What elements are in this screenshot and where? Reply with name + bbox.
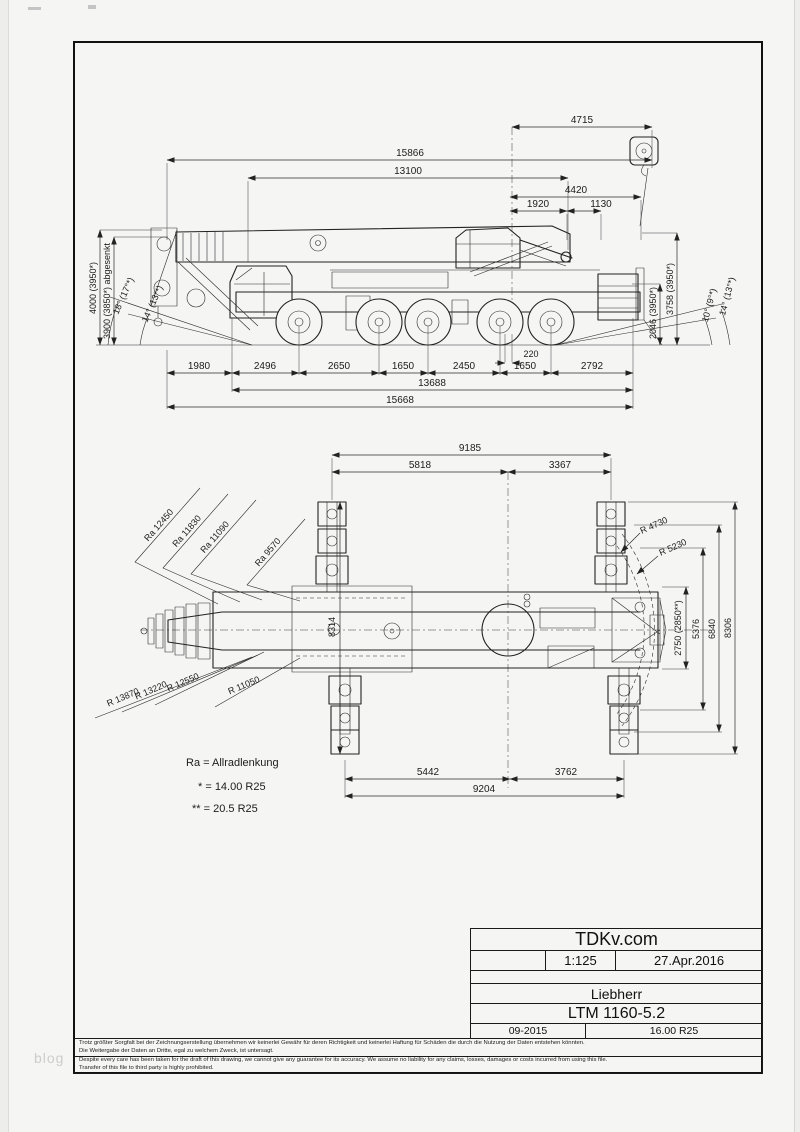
title-block-empty-cell: [470, 950, 546, 971]
radius-ra11090: Ra 11090: [198, 519, 231, 555]
legend-tire-double-star: ** = 20.5 R25: [192, 803, 258, 815]
dim-2650: 2650: [328, 361, 351, 372]
dim-4715: 4715: [571, 115, 594, 126]
dim-2750: 2750 (2850**): [673, 600, 683, 656]
radius-r5230: R 5230: [657, 537, 688, 558]
dim-2496: 2496: [254, 361, 277, 372]
dim-2792: 2792: [581, 361, 604, 372]
website-text: TDKv.com: [575, 929, 658, 950]
approach-angle-18: 18° (17°*): [111, 276, 136, 316]
site-watermark: blog: [34, 1050, 64, 1066]
disclaimer-en-line2: Transfer of this file to third party is …: [79, 1065, 214, 1071]
scale-text: 1:125: [564, 953, 597, 968]
title-block-spacer-row: [470, 970, 763, 984]
wheels: [276, 299, 574, 345]
dim-3367: 3367: [549, 460, 572, 471]
disclaimer-de-line1: Trotz größter Sorgfalt bei der Zeichnung…: [79, 1040, 585, 1046]
title-block-model: LTM 1160-5.2: [470, 1003, 763, 1024]
radius-r12550: R 12550: [165, 671, 200, 694]
doc-date-text: 09-2015: [509, 1025, 548, 1037]
dim-1650-b: 1650: [514, 361, 537, 372]
dim-1920: 1920: [527, 199, 550, 210]
disclaimer-de-line2: Die Weitergabe der Daten an Dritte, egal…: [79, 1048, 274, 1054]
outrigger-rear-top: [595, 502, 627, 592]
radius-ra9570: Ra 9570: [253, 536, 283, 568]
title-block-doc-date: 09-2015: [470, 1023, 586, 1039]
dim-4420: 4420: [565, 185, 588, 196]
dim-1980: 1980: [188, 361, 211, 372]
radius-r13220: R 13220: [133, 679, 168, 702]
dim-1650-a: 1650: [392, 361, 415, 372]
approach-angle-14: 14° (13°*): [140, 284, 165, 324]
model-text: LTM 1160-5.2: [568, 1005, 665, 1023]
manufacturer-text: Liebherr: [591, 986, 642, 1002]
disclaimer-german-row: Trotz größter Sorgfalt bei der Zeichnung…: [74, 1038, 763, 1057]
plan-view-crane-linework: [140, 472, 708, 788]
boom-head: [151, 228, 258, 330]
title-block-scale: 1:125: [545, 950, 616, 971]
dim-height-3758: 3758 (3950*): [665, 263, 675, 315]
dim-5442: 5442: [417, 767, 440, 778]
tires-text: 16.00 R25: [650, 1025, 698, 1037]
dim-6840: 6840: [707, 619, 717, 639]
departure-angle-14: 14° (13°*): [717, 276, 737, 316]
dim-3762: 3762: [555, 767, 578, 778]
dim-220: 220: [523, 349, 538, 359]
title-block-website: TDKv.com: [470, 928, 763, 951]
dim-8306: 8306: [723, 618, 733, 638]
title-block-date: 27.Apr.2016: [615, 950, 763, 971]
drawing-border-frame: [74, 42, 762, 1073]
dim-2450: 2450: [453, 361, 476, 372]
disclaimer-en-line1: Despite every care has been taken for th…: [79, 1057, 607, 1063]
disclaimer-english-row: Despite every care has been taken for th…: [74, 1056, 763, 1074]
dim-13688: 13688: [418, 378, 446, 389]
dim-height-3900-lowered: 3900 (3850*) abgesenkt: [102, 242, 112, 339]
outrigger-front-top: [316, 502, 348, 592]
dim-height-4000: 4000 (3950*): [88, 262, 98, 314]
hook-block-icon: [630, 137, 658, 226]
outrigger-front-bottom: [329, 668, 361, 754]
boom-head-plan: [141, 603, 210, 659]
dim-9204: 9204: [473, 784, 496, 795]
radius-ra11830: Ra 11830: [170, 513, 203, 549]
dim-8314: 8314: [327, 617, 337, 637]
dim-1130: 1130: [590, 199, 612, 210]
radius-ra12450: Ra 12450: [142, 507, 175, 543]
legend: Ra = Allradlenkung * = 14.00 R25 ** = 20…: [186, 757, 279, 815]
radius-r4730: R 4730: [638, 515, 669, 536]
dim-5818: 5818: [409, 460, 432, 471]
dim-13100: 13100: [394, 166, 422, 177]
dim-5376: 5376: [691, 619, 701, 639]
scanned-drawing-page: 4715 15866 13100 4420 1920 1130 4000 (39…: [0, 0, 800, 1132]
dim-height-2046: 2046 (3950*): [648, 287, 658, 339]
date-text: 27.Apr.2016: [654, 953, 724, 968]
dim-15668: 15668: [386, 395, 414, 406]
radius-r11050: R 11050: [227, 674, 262, 696]
legend-allrad: Ra = Allradlenkung: [186, 757, 279, 769]
title-block-tires: 16.00 R25: [585, 1023, 763, 1039]
title-block-manufacturer: Liebherr: [470, 983, 763, 1004]
legend-tire-single-star: * = 14.00 R25: [198, 781, 266, 793]
dim-9185: 9185: [459, 443, 482, 454]
dim-15866: 15866: [396, 148, 424, 159]
departure-angle-10: 10° (9°*): [700, 287, 719, 323]
